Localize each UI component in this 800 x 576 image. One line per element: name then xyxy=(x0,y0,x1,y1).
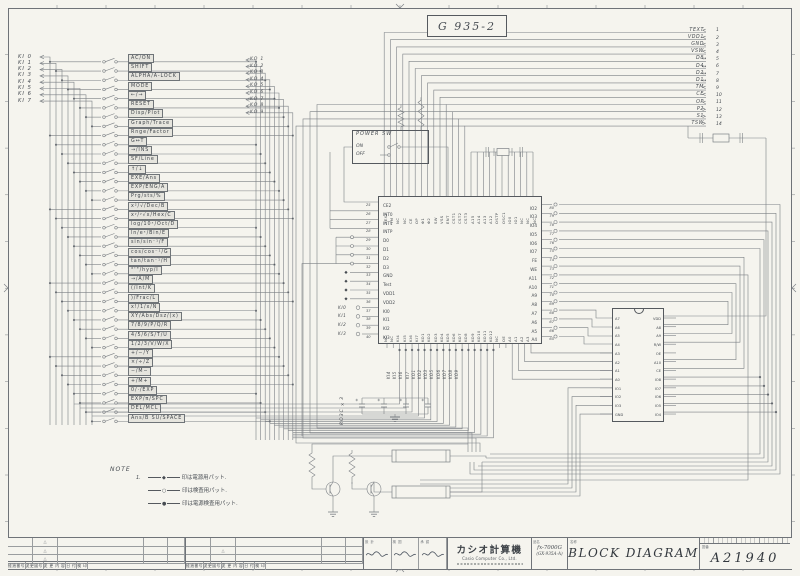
revision-rows: △ △ △ xyxy=(8,538,185,561)
connector-pin-row: OP < 11 xyxy=(600,99,740,106)
key-row: ×/÷/Z xyxy=(128,358,185,367)
key-row: EXP/ENG/A xyxy=(128,183,185,192)
company-name-en: Casio Computer Co., Ltd. xyxy=(448,556,531,561)
note-item-number: 1. xyxy=(136,475,141,481)
pin-number: 78 xyxy=(549,223,554,227)
key-box: tan/tan⁻¹/H xyxy=(128,257,171,266)
pin-label: A8 xyxy=(653,324,661,333)
key-row: x²/√/Dec/B xyxy=(128,202,185,211)
connector-pin-arrow-icon: ↔ xyxy=(702,64,706,70)
approval-header: 設 計 xyxy=(365,539,374,544)
ki-label: KI 7 xyxy=(18,98,32,104)
ki-label-column: KI 0KI 1KI 2KI 3KI 4KI 5KI 6KI 7 xyxy=(18,54,32,104)
connector-pin-number: 11 xyxy=(716,100,722,105)
ki-input-label: KI1 xyxy=(338,312,346,321)
key-box: AC/ON xyxy=(128,54,154,63)
pin-row: 78 IO4 xyxy=(506,223,540,232)
connector-pin-arrow-icon: < xyxy=(702,49,706,55)
pin-label: IO7 xyxy=(653,385,661,394)
revision-mark: △ xyxy=(33,538,58,546)
drawing-number: A21940 xyxy=(700,551,790,566)
connector-pin-row: VDD1 < 2 xyxy=(600,34,740,41)
key-box: x²/√/Dec/B xyxy=(128,202,168,211)
drawing-number-block: 図番 A21940 xyxy=(700,538,790,569)
connector-pin-number: 7 xyxy=(716,72,719,77)
document-code: G 935-2 xyxy=(438,20,496,33)
note-block: NOTE 1. ◆ 印は電源用パット. ○ 印は検査用パット. ● 印は電源検査… xyxy=(110,466,320,512)
document-code-box: G 935-2 xyxy=(427,15,507,37)
key-row: 1/2/3/V/W/X xyxy=(128,340,185,349)
pin-label: KI0 xyxy=(383,309,390,314)
approval-header: 検 図 xyxy=(393,539,402,544)
ki-label: KI 3 xyxy=(18,72,32,78)
pin-row: 75 IO7 xyxy=(506,249,540,258)
pin-label: IO2 xyxy=(615,393,623,402)
ko-label: KO 1 xyxy=(250,57,264,64)
pin-number: 76 xyxy=(549,241,554,245)
key-box: cos/cos⁻¹/G xyxy=(128,248,171,257)
pin-label: KO3 xyxy=(433,316,439,342)
connector-pin-arrow-icon: > xyxy=(702,107,706,113)
main-ic: TEXTTMNCNCCEOPΦ1Φ2SWVSSENTCST1CST2CST3A1… xyxy=(378,196,542,344)
key-box: EXP/π/SPC xyxy=(128,395,167,404)
key-box: EXP/ENG/A xyxy=(128,183,168,192)
key-row: ALPHA/A-LOCK xyxy=(128,72,185,81)
key-row: log/10ˣ/Oct/D xyxy=(128,220,185,229)
revision-mark: △ xyxy=(33,547,58,555)
bus-line-label: KO1 xyxy=(411,347,417,379)
revision-header-cell: 検 印 xyxy=(255,562,266,570)
signature-scribble xyxy=(393,547,417,561)
connector-pin-arrow-icon: ↔ xyxy=(702,71,706,77)
connector-pin-row: GND < 3 xyxy=(600,41,740,48)
key-box: Prg/sts/% xyxy=(128,192,165,201)
key-box: 4/5/6/S/T/U xyxy=(128,331,171,340)
pin-row: 72 A11 xyxy=(506,276,540,285)
number-label: 図番 xyxy=(702,544,709,549)
pin-row: 28 INTP xyxy=(380,229,414,238)
power-switch-on-label: ON xyxy=(356,144,363,149)
pin-number: 68 xyxy=(549,311,554,315)
connector-pin-arrow-icon: ↔ xyxy=(702,78,706,84)
key-box: Disp/Plot xyxy=(128,109,163,118)
pin-number: 37 xyxy=(366,309,371,313)
wire-dash xyxy=(148,477,161,478)
key-row: sin/sin⁻¹/F xyxy=(128,238,185,247)
pin-label: NC xyxy=(494,316,500,342)
note-title: NOTE xyxy=(110,466,320,473)
pin-number: 66 xyxy=(549,329,554,333)
pin-label: A15 xyxy=(470,198,476,224)
pin-number: 69 xyxy=(549,302,554,306)
note-line: ◆ 印は電源用パット. xyxy=(148,473,320,486)
pin-number: 35 xyxy=(366,291,371,295)
key-row: 0/·/EXP xyxy=(128,386,185,395)
pin-label: VDD xyxy=(653,315,661,324)
pin-row: 67 A6 xyxy=(506,320,540,329)
pin-label: KI1 xyxy=(383,317,390,322)
connector-pin-number: 6 xyxy=(716,64,719,69)
key-row: +/−/Y xyxy=(128,349,185,358)
wire-dash xyxy=(167,490,180,491)
key-box: Rnge/Factor xyxy=(128,128,173,137)
pin-row: 65 A4 xyxy=(506,337,540,346)
connector-pin-number: 2 xyxy=(716,36,719,41)
pin-label: CE2 xyxy=(383,203,391,208)
pin-row: 34 Test xyxy=(380,282,414,291)
key-row: )/Frac/L xyxy=(128,294,185,303)
pin-label: A10 xyxy=(653,359,661,368)
key-box: +/−/Y xyxy=(128,349,153,358)
pin-label: INTP xyxy=(383,229,392,234)
connector-pin-number: 1 xyxy=(716,28,719,33)
pin-label: IO6 xyxy=(653,393,661,402)
pin-label: OE xyxy=(653,350,661,359)
pin-row: 68 A7 xyxy=(506,311,540,320)
pin-number: 75 xyxy=(549,249,554,253)
pin-row: 80 IO2 xyxy=(506,206,540,215)
signature-scribble xyxy=(421,547,445,561)
bus-line-label: KO7 xyxy=(442,347,448,379)
pin-row: 77 IO5 xyxy=(506,232,540,241)
pin-label: CST3 xyxy=(463,198,469,224)
key-box: 1/2/3/V/W/X xyxy=(128,340,172,349)
revision-header-cell: 日 付 xyxy=(244,562,255,570)
ko-label: KO 5 xyxy=(250,83,264,90)
pin-number: 79 xyxy=(549,214,554,218)
key-box: ↑/↓ xyxy=(128,165,146,174)
pin-label: A6 xyxy=(615,324,623,333)
pin-label: IO6 xyxy=(530,241,537,246)
company-logo: カシオ計算機 xyxy=(448,542,531,556)
connector-pin-arrow-icon: > xyxy=(702,114,706,120)
key-box: ←/→ xyxy=(128,91,146,100)
ko-label: KO 8 xyxy=(250,103,264,110)
wire-dash xyxy=(167,503,180,504)
pin-label: A9 xyxy=(653,332,661,341)
pin-row: 66 A5 xyxy=(506,329,540,338)
drawing-title: BLOCK DIAGRAM xyxy=(568,546,699,560)
connector-pin-row: D2 ↔ 7 xyxy=(600,70,740,77)
pin-row: 74 FE xyxy=(506,258,540,267)
key-row: G↔T xyxy=(128,137,185,146)
pin-label: A9 xyxy=(531,293,537,298)
key-row: −/M− xyxy=(128,367,185,376)
key-box: ALPHA/A-LOCK xyxy=(128,72,180,81)
revision-header-cell: 変更図号 xyxy=(26,562,44,570)
key-box: 0/·/EXP xyxy=(128,386,157,395)
company-block: カシオ計算機 Casio Computer Co., Ltd. xyxy=(448,538,532,569)
bus-line-label: KO5 xyxy=(429,347,435,379)
pin-number: 28 xyxy=(366,229,371,233)
connector-pin-row: D4 ↔ 6 xyxy=(600,63,740,70)
pin-number: 40 xyxy=(366,335,371,339)
connector-pin-arrow-icon: < xyxy=(702,42,706,48)
connector-pin-row: S1 > 13 xyxy=(600,113,740,120)
key-row: Disp/Plot xyxy=(128,109,185,118)
key-row: xʸ/ʸ√x/Hex/C xyxy=(128,211,185,220)
ram-left-pins: A7A6A5A4A3A2A1A0IO1IO2IO3GND xyxy=(615,315,623,420)
key-row: EXE/Ans xyxy=(128,174,185,183)
connector-pin-row: TM < 9 xyxy=(600,84,740,91)
pin-number: 39 xyxy=(366,326,371,330)
connector-pin-arrow-icon: < xyxy=(702,35,706,41)
ki-input-label: KI2 xyxy=(338,321,346,330)
note-text: 印は電源検査用パット. xyxy=(182,501,238,507)
pin-label: A11 xyxy=(529,276,537,281)
company-microtext xyxy=(457,563,523,566)
pad-symbol-icon: ● xyxy=(162,501,166,507)
approval-cell: 設 計 xyxy=(364,538,392,569)
pin-label: KO2 xyxy=(426,316,432,342)
note-lines: ◆ 印は電源用パット. ○ 印は検査用パット. ● 印は電源検査用パット. xyxy=(148,473,320,512)
key-box: ln/eˣ/Bin/E xyxy=(128,229,169,238)
pin-label: A4 xyxy=(531,337,537,342)
pin-label: INT0 xyxy=(383,212,393,217)
key-row: →/INS xyxy=(128,146,185,155)
key-box: G↔T xyxy=(128,137,147,146)
pin-number: 80 xyxy=(549,206,554,210)
bus-line-label: KI7 xyxy=(405,347,411,379)
pin-label: IO4 xyxy=(530,223,537,228)
pin-label: D0 xyxy=(383,238,389,243)
key-row: SHIFT xyxy=(128,63,185,72)
revision-table-1: △ △ △ 経過番号変更図号変 更 内 容日 付検 印 xyxy=(8,538,186,569)
note-text: 印は検査用パット. xyxy=(182,488,227,494)
connector-pin-number: 4 xyxy=(716,50,719,55)
pin-label: OSTP xyxy=(494,198,500,224)
revision-header-cell: 経過番号 xyxy=(186,562,204,570)
pin-label: D3 xyxy=(383,265,389,270)
connector-pin-row: TEXT < 1 xyxy=(600,27,740,34)
pin-label: GND xyxy=(615,411,623,420)
pin-label: A10 xyxy=(529,285,537,290)
pin-number: 36 xyxy=(366,300,371,304)
pin-label: IO8 xyxy=(653,376,661,385)
approval-cell: 承 認 xyxy=(419,538,447,569)
connector-pin-row: CE < 10 xyxy=(600,92,740,99)
pin-label: VSS xyxy=(439,198,445,224)
pin-number: 67 xyxy=(549,320,554,324)
pin-label: IO5 xyxy=(530,232,537,237)
connector-pin-number: 14 xyxy=(716,122,722,127)
pin-label: IO5 xyxy=(653,402,661,411)
ic-notch xyxy=(634,309,644,314)
connector-pin-arrow-icon: > xyxy=(702,121,706,127)
main-ic-right-pins: 80 IO2 79 IO3 78 IO4 77 IO5 xyxy=(506,206,540,347)
key-row: EXP/π/SPC xyxy=(128,395,185,404)
drawing-name-block: 名称 BLOCK DIAGRAM xyxy=(568,538,700,569)
bus-line-label: KI6 xyxy=(398,347,404,379)
pin-row: 79 IO3 xyxy=(506,214,540,223)
bus-line-label: KO9 xyxy=(454,347,460,379)
key-row: Rnge/Factor xyxy=(128,128,185,137)
revision-header-cell: 変 更 内 容 xyxy=(222,562,245,570)
key-box: −/M− xyxy=(128,367,151,376)
key-box: →/INS xyxy=(128,146,152,155)
pad-symbol-icon: ○ xyxy=(162,488,166,494)
key-row: Graph/Trace xyxy=(128,119,185,128)
pin-label: KO8 xyxy=(463,316,469,342)
key-box: Graph/Trace xyxy=(128,119,173,128)
pin-row: 69 A8 xyxy=(506,302,540,311)
signature-scribble xyxy=(365,547,389,561)
key-row: Prg/sts/% xyxy=(128,192,185,201)
revision-rows: △ xyxy=(186,538,363,561)
key-row: (/Int/K xyxy=(128,284,185,293)
pin-row: 76 IO6 xyxy=(506,241,540,250)
approval-cell: 検 図 xyxy=(392,538,420,569)
key-row: →/A/M xyxy=(128,275,185,284)
pin-row: 37 KI0 xyxy=(380,309,414,318)
key-row: ln/eˣ/Bin/E xyxy=(128,229,185,238)
key-row: cos/cos⁻¹/G xyxy=(128,248,185,257)
revision-header-cell: 検 印 xyxy=(77,562,88,570)
revision-header-cell: 変更図号 xyxy=(204,562,222,570)
pin-label: IO7 xyxy=(530,249,537,254)
key-box: MODE xyxy=(128,82,152,91)
key-row: 4/5/6/S/T/U xyxy=(128,331,185,340)
key-box: 7/8/9/P/Q/R xyxy=(128,321,171,330)
pin-label: WE xyxy=(530,267,537,272)
ki-input-label: KI3 xyxy=(338,330,346,339)
key-box: RESET xyxy=(128,100,154,109)
note-line: ○ 印は検査用パット. xyxy=(148,486,320,499)
pin-label: A1 xyxy=(615,367,623,376)
pin-row: 26 INT0 xyxy=(380,212,414,221)
revision-header-cell: 日 付 xyxy=(66,562,77,570)
key-matrix-list: AC/ON SHIFT ALPHA/A-LOCK MODE ←/→ RESET xyxy=(128,54,185,423)
pin-label: A8 xyxy=(531,302,537,307)
key-box: Ans/B SU/SPACE xyxy=(128,414,185,423)
component-ref-label: RO3C ×3 xyxy=(340,396,345,425)
pin-number: 25 xyxy=(366,203,371,207)
ko-label-column: KO 1KO 2KO 3KO 4KO 5KO 6KO 7KO 8KO 9 xyxy=(250,57,264,116)
ko-label: KO 9 xyxy=(250,110,264,117)
pin-label: CE xyxy=(653,367,661,376)
name-label: 名称 xyxy=(570,539,577,544)
pin-label: FE xyxy=(532,258,537,263)
key-row: Ans/B SU/SPACE xyxy=(128,414,185,423)
ki-label: KI 0 xyxy=(18,54,32,60)
key-row: 7/8/9/P/Q/R xyxy=(128,321,185,330)
note-text: 印は電源用パット. xyxy=(182,475,227,481)
pin-row: 32 D3 xyxy=(380,265,414,274)
connector-pin-arrow-icon: ↔ xyxy=(702,56,706,62)
key-box: +/M+ xyxy=(128,377,151,386)
pin-number: 32 xyxy=(366,265,371,269)
pin-row: 71 A10 xyxy=(506,285,540,294)
revision-mark: △ xyxy=(211,547,236,555)
pin-number: 73 xyxy=(549,267,554,271)
pin-number: 31 xyxy=(366,256,371,260)
connector-pin-row: D8 ↔ 5 xyxy=(600,56,740,63)
pin-label: IO3 xyxy=(615,402,623,411)
pin-label: A2 xyxy=(615,359,623,368)
ruler-strip xyxy=(700,538,790,544)
pin-number: 77 xyxy=(549,232,554,236)
ki-input-labels: KI0KI1KI2KI3 xyxy=(338,304,346,339)
ko-label: KO 3 xyxy=(250,70,264,77)
power-switch-off-label: OFF xyxy=(356,152,365,157)
connector-pin-number: 3 xyxy=(716,43,719,48)
pin-number: 27 xyxy=(366,221,371,225)
pin-label: IO1 xyxy=(615,385,623,394)
pin-label: A5 xyxy=(531,329,537,334)
pin-label: KI3 xyxy=(383,335,390,340)
pin-label: SW xyxy=(433,198,439,224)
connector-pin-number: 8 xyxy=(716,79,719,84)
pin-label: VDD2 xyxy=(383,300,395,305)
wire-dash xyxy=(167,477,180,478)
wire-dash xyxy=(148,490,161,491)
pin-label: VDD1 xyxy=(383,291,395,296)
connector-pin-number: 10 xyxy=(716,93,722,98)
key-box: x!/1/x/N xyxy=(128,303,160,312)
pin-label: IO3 xyxy=(530,214,537,219)
key-row: XY/Abs/Dsz/(x) xyxy=(128,312,185,321)
key-box: sin/sin⁻¹/F xyxy=(128,238,168,247)
pin-row: 36 VDD2 xyxy=(380,300,414,309)
key-box: XY/Abs/Dsz/(x) xyxy=(128,312,182,321)
model-subname: (GX-935A-A) xyxy=(532,551,567,556)
connector-pin-number: 9 xyxy=(716,86,719,91)
connector-pin-row: TSW > 14 xyxy=(600,120,740,127)
connector-pin-row: P2 > 12 xyxy=(600,106,740,113)
pin-label: GND xyxy=(383,273,393,278)
ko-label: KO 6 xyxy=(250,90,264,97)
pin-label: A5 xyxy=(615,332,623,341)
pin-number: 30 xyxy=(366,247,371,251)
ki-label: KI 6 xyxy=(18,91,32,97)
pin-number: 38 xyxy=(366,317,371,321)
pin-number: 65 xyxy=(549,337,554,341)
pin-number: 70 xyxy=(549,293,554,297)
pin-row: 40 KI3 xyxy=(380,335,414,344)
key-row: DEL/MCL xyxy=(128,404,185,413)
pin-row: 31 D2 xyxy=(380,256,414,265)
power-switch-box: POWER SW ON OFF xyxy=(352,130,429,164)
key-box: (/Int/K xyxy=(128,284,155,293)
pin-row: 30 D1 xyxy=(380,247,414,256)
connector-pin-arrow-icon: < xyxy=(702,100,706,106)
connector-pin-arrow-icon: < xyxy=(702,85,706,91)
pin-label: KI2 xyxy=(383,326,390,331)
revision-table-2: △ 経過番号変更図号変 更 内 容日 付検 印 xyxy=(186,538,364,569)
connector-pin-row: VSW < 4 xyxy=(600,48,740,55)
revision-header-cell: 経過番号 xyxy=(8,562,26,570)
pin-row: 27 INT1 xyxy=(380,221,414,230)
pin-label: INT1 xyxy=(383,221,393,226)
key-row: SF/Line xyxy=(128,155,185,164)
key-box: SF/Line xyxy=(128,155,158,164)
pin-number: 29 xyxy=(366,238,371,242)
pin-label: A0 xyxy=(615,376,623,385)
power-switch-title: POWER SW xyxy=(356,131,392,137)
key-box: log/10ˣ/Oct/D xyxy=(128,220,178,229)
pad-symbol-icon: ◆ xyxy=(162,475,166,481)
keyboard-bus-labels: KI4KI5KI6KI7KO1KO2KO3KO5KO6KO7KO8KO9 xyxy=(386,347,460,379)
key-row: ↑/↓ xyxy=(128,165,185,174)
pin-label: IO4 xyxy=(653,411,661,420)
connector-pin-arrow-icon: < xyxy=(702,28,706,34)
pin-number: 34 xyxy=(366,282,371,286)
pin-row: 70 A9 xyxy=(506,293,540,302)
pin-label: D2 xyxy=(383,256,389,261)
approval-block: 設 計 検 図 承 認 xyxy=(364,538,448,569)
pin-row: 38 KI1 xyxy=(380,317,414,326)
main-ic-left-pins: 25 CE2 26 INT0 27 INT1 28 INTP xyxy=(380,203,414,344)
